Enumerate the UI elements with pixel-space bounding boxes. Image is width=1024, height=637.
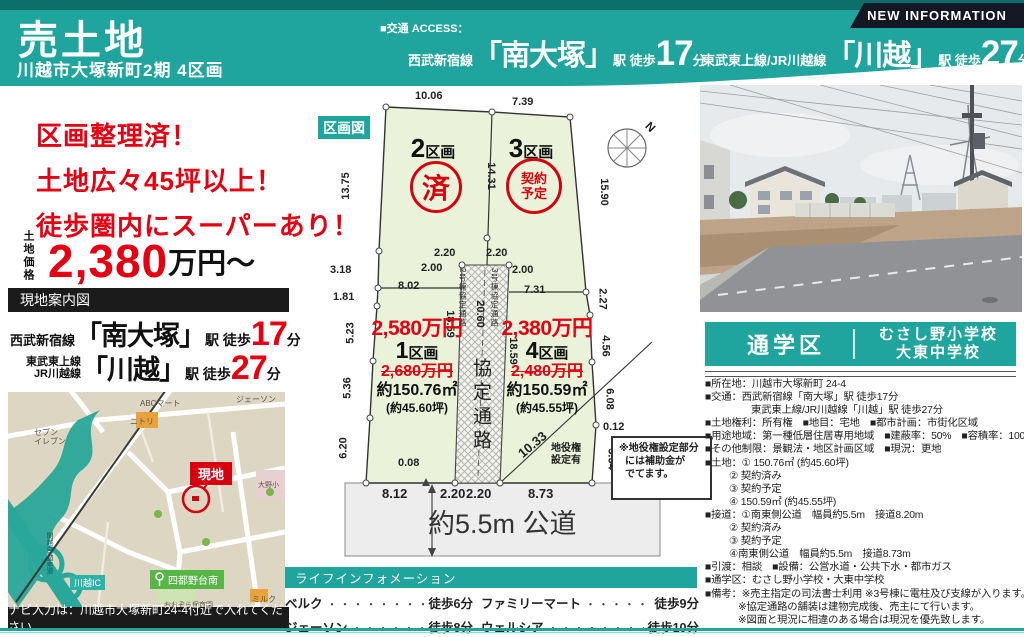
map-label-bus-stop: 四都野台南: [150, 570, 224, 589]
station-name: 「川越」: [826, 32, 938, 74]
rail-line-a: 東武東上線: [26, 356, 81, 368]
flyer-page: 売土地 川越市大塚新町2期 4区画 NEW INFORMATION ■交通 AC…: [0, 0, 1024, 637]
plot4-area: 約150.59㎡: [482, 383, 612, 399]
plot1-area: 約150.76㎡: [352, 383, 482, 399]
dim-label: 6.20: [338, 437, 350, 458]
minutes-unit: 分: [1018, 50, 1024, 69]
map-site-tag: 現地: [190, 462, 232, 485]
dots: ・・・・・・: [585, 596, 651, 612]
dim-label: 8.02: [398, 280, 419, 292]
plot4-info: 2,380万円 4 区画 2,480万円 約150.59㎡ (約45.55坪): [482, 318, 612, 414]
walk-minutes: 27: [981, 34, 1018, 74]
price-value: 2,380: [48, 234, 168, 288]
walk-minutes: 17: [656, 34, 693, 74]
site-photo: [700, 85, 1022, 312]
store-row: ジェーソン ・・・・・・・・・ 徒歩8分: [285, 617, 473, 636]
detail-line: ■土地権利：所有権 ■地目：宅地 ■都市計画：市街化区域: [705, 417, 1024, 430]
detail-line: ※協定通路の舗装は建物完成後、売主にて行います。: [705, 601, 1024, 614]
rail-line: 西武新宿線: [10, 330, 75, 349]
dim-label: 7.39: [512, 96, 533, 108]
rail-lines: 東武東上線 JR川越線: [26, 356, 81, 380]
dim-label: 2.27: [597, 288, 609, 309]
dim-label: 2.00: [512, 264, 533, 276]
detail-line: ④南東側公道 幅員約5.5m 接道8.73m: [705, 548, 1024, 561]
store-name: ジェーソン: [285, 617, 348, 636]
store-name: ウェルシア: [481, 617, 544, 636]
bottom-rule: [0, 628, 1024, 631]
store-time: 徒歩6分: [429, 593, 473, 612]
photo-graphics: [700, 85, 1022, 312]
detail-line: ※図面と現況に相違のある場合は現況を優先致します。: [705, 614, 1024, 627]
dim-label: 8.73: [528, 486, 553, 501]
dim-label: 1.81: [333, 291, 354, 303]
store-row: ベルク ・・・・・・・・・・・ 徒歩6分: [285, 593, 473, 612]
dim-label: 2.00: [421, 262, 442, 274]
rail-line-b: JR川越線: [34, 368, 81, 380]
plot2-label: 2 区画: [398, 133, 468, 164]
store-name: ベルク: [285, 593, 323, 612]
dim-label: 15.90: [598, 178, 610, 206]
detail-line: ■備考：※売主指定の司法書士利用 ※3号棟に電柱及び支線が入ります。: [705, 588, 1024, 601]
dim-label: 3.18: [330, 264, 351, 276]
elementary-school: むさし野小学校: [879, 326, 998, 343]
walk-label: 駅 徒歩: [938, 50, 981, 69]
plot1-label: 1 区画: [352, 339, 482, 362]
school-district-banner: 通学区 むさし野小学校 大東中学校: [705, 322, 1016, 366]
store-time: 徒歩8分: [429, 617, 473, 636]
walk-minutes: 27: [231, 349, 267, 388]
dim-label: 2.20: [440, 486, 465, 501]
store-time: 徒歩9分: [655, 593, 699, 612]
guide-map-bar: 現地案内図: [8, 288, 289, 312]
junior-high-school: 大東中学校: [896, 344, 981, 361]
corridor-label-center: 協定通路: [467, 358, 494, 454]
station-name: 「川越」: [81, 348, 185, 387]
store-name: ファミリーマート: [481, 593, 581, 612]
plot1-old-price: 2,680万円: [352, 364, 482, 380]
plot1-tsubo: (約45.60坪): [352, 402, 482, 414]
detail-line: ■接道：①南東側公道 幅員約5.5m 接道8.20m: [705, 509, 1024, 522]
plot4-price: 2,380万円: [482, 318, 612, 339]
map-label-ohno-school: 大野小: [258, 480, 279, 490]
easement-note: 地役権設定有: [551, 443, 581, 467]
rail-line: 東武東上線/JR川越線: [702, 50, 826, 69]
detail-line: ④ 150.59㎡ (約45.55坪): [705, 496, 1024, 509]
dim-label: 2.20: [466, 486, 491, 501]
corridor-label-left: 2号棟協定通路: [457, 268, 468, 327]
price-label: 土地価格: [20, 230, 36, 292]
dots: ・・・・・・・・・・・: [327, 596, 425, 612]
dim-label: 14.31: [485, 162, 497, 190]
dim-label: 7.31: [524, 284, 545, 296]
detail-line: ■所在地：川越市大塚新町 24-4: [705, 378, 1024, 391]
detail-line: ■土地：① 150.76㎡ (約45.60坪): [705, 457, 1024, 470]
minutes-unit: 分: [267, 364, 281, 384]
divider: [853, 329, 855, 359]
map-label-nitori: ニトリ: [130, 416, 154, 427]
plot2-stamp-sold: 済: [410, 161, 462, 213]
store-row: ファミリーマート ・・・・・・ 徒歩9分: [481, 593, 699, 612]
minutes-unit: 分: [287, 330, 301, 350]
plot4-label: 4 区画: [482, 339, 612, 362]
detail-line: 東武東上線/JR川越線「川越」駅 徒歩27分: [705, 404, 1024, 417]
detail-line: ■用途地域：第一種低層住居専用地域 ■建蔽率：50% ■容積率：100%: [705, 430, 1024, 443]
price-unit: 万円～: [168, 240, 255, 282]
location-map: ABCマート ニトリ セブンイレブン ジェーソン 大野小 おおぞら保育園 ミルク…: [8, 392, 285, 607]
detail-line: ② 契約済み: [705, 470, 1024, 483]
pin-icon: [154, 572, 165, 586]
dim-label: 0.12: [603, 421, 624, 433]
plot4-old-price: 2,480万円: [482, 364, 612, 380]
double-rule: [705, 371, 1016, 377]
store-row: ウェルシア ・・・・・・・・ 徒歩10分: [481, 617, 699, 636]
property-details: ■所在地：川越市大塚新町 24-4 ■交通：西武新宿線「南大塚」駅 徒歩17分 …: [705, 378, 1024, 627]
detail-line: ■引渡：相談 ■設備：公営水道・公共下水・都市ガス: [705, 561, 1024, 574]
detail-line: ■その他制限：景観法・地区計画区域 ■現況：更地: [705, 443, 1024, 456]
school-district-label: 通学区: [747, 328, 825, 360]
bottom-rule-light: [0, 632, 1024, 633]
new-information-banner: NEW INFORMATION: [850, 3, 1024, 28]
header-access-1: 西武新宿線 「南大塚」 駅 徒歩 17 分: [408, 32, 706, 74]
dim-label: 2.20: [486, 247, 507, 259]
page-subtitle: 川越市大塚新町2期 4区画: [17, 56, 224, 81]
detail-line: ② 契約済み: [705, 522, 1024, 535]
detail-line: ③ 契約予定: [705, 483, 1024, 496]
subsidy-note-box: ※地役権設定部分 には補助金が でてます。: [611, 436, 712, 500]
compass-icon: [608, 129, 646, 167]
nav-note-bar: ナビ入力は：川越市大塚新町24-4付近で入れてください。: [8, 607, 289, 629]
plot3-stamp-pending: 契約予定: [506, 158, 562, 214]
detail-line: ■交通：西武新宿線「南大塚」駅 徒歩17分: [705, 391, 1024, 404]
dim-label: 8.12: [382, 486, 407, 501]
plot4-tsubo: (約45.55坪): [482, 402, 612, 414]
dim-label: 2.20: [434, 247, 455, 259]
left-access-2: 東武東上線 JR川越線 「川越」 駅 徒歩 27 分: [26, 348, 281, 388]
rail-line: 西武新宿線: [408, 50, 473, 69]
map-label-jason: ジェーソン: [236, 394, 276, 405]
detail-line: ③ 契約予定: [705, 535, 1024, 548]
station-name: 「南大塚」: [473, 32, 613, 74]
walk-label: 駅 徒歩: [185, 364, 231, 384]
header-access-2: 東武東上線/JR川越線 「川越」 駅 徒歩 27 分: [702, 32, 1024, 74]
walk-label: 駅 徒歩: [613, 50, 656, 69]
price-block: 土地価格 2,380 万円～: [20, 230, 255, 292]
corridor-label-right: 3号棟協定通路: [489, 268, 500, 327]
dim-label: 10.06: [415, 90, 443, 102]
detail-line: ■通学区：むさし野小学校・大東中学校: [705, 574, 1024, 587]
map-label-abc-mart: ABCマート: [140, 398, 180, 409]
plot1-info: 2,580万円 1 区画 2,680万円 約150.76㎡ (約45.60坪): [352, 318, 482, 414]
school-names: むさし野小学校 大東中学校: [879, 326, 998, 362]
map-label-kawagoe-ic: 川越IC: [70, 575, 105, 590]
map-label-highway: 関越自動車道: [44, 532, 54, 574]
dim-label: 13.75: [340, 172, 352, 200]
life-info-bar: ライフインフォメーション: [285, 567, 697, 588]
map-label-seven-eleven: セブンイレブン: [34, 428, 66, 446]
store-time: 徒歩10分: [648, 617, 699, 636]
road-label: 約5.5m 公道: [428, 502, 577, 541]
walk-label: 駅 徒歩: [205, 330, 251, 350]
dim-label: 0.08: [398, 457, 419, 469]
